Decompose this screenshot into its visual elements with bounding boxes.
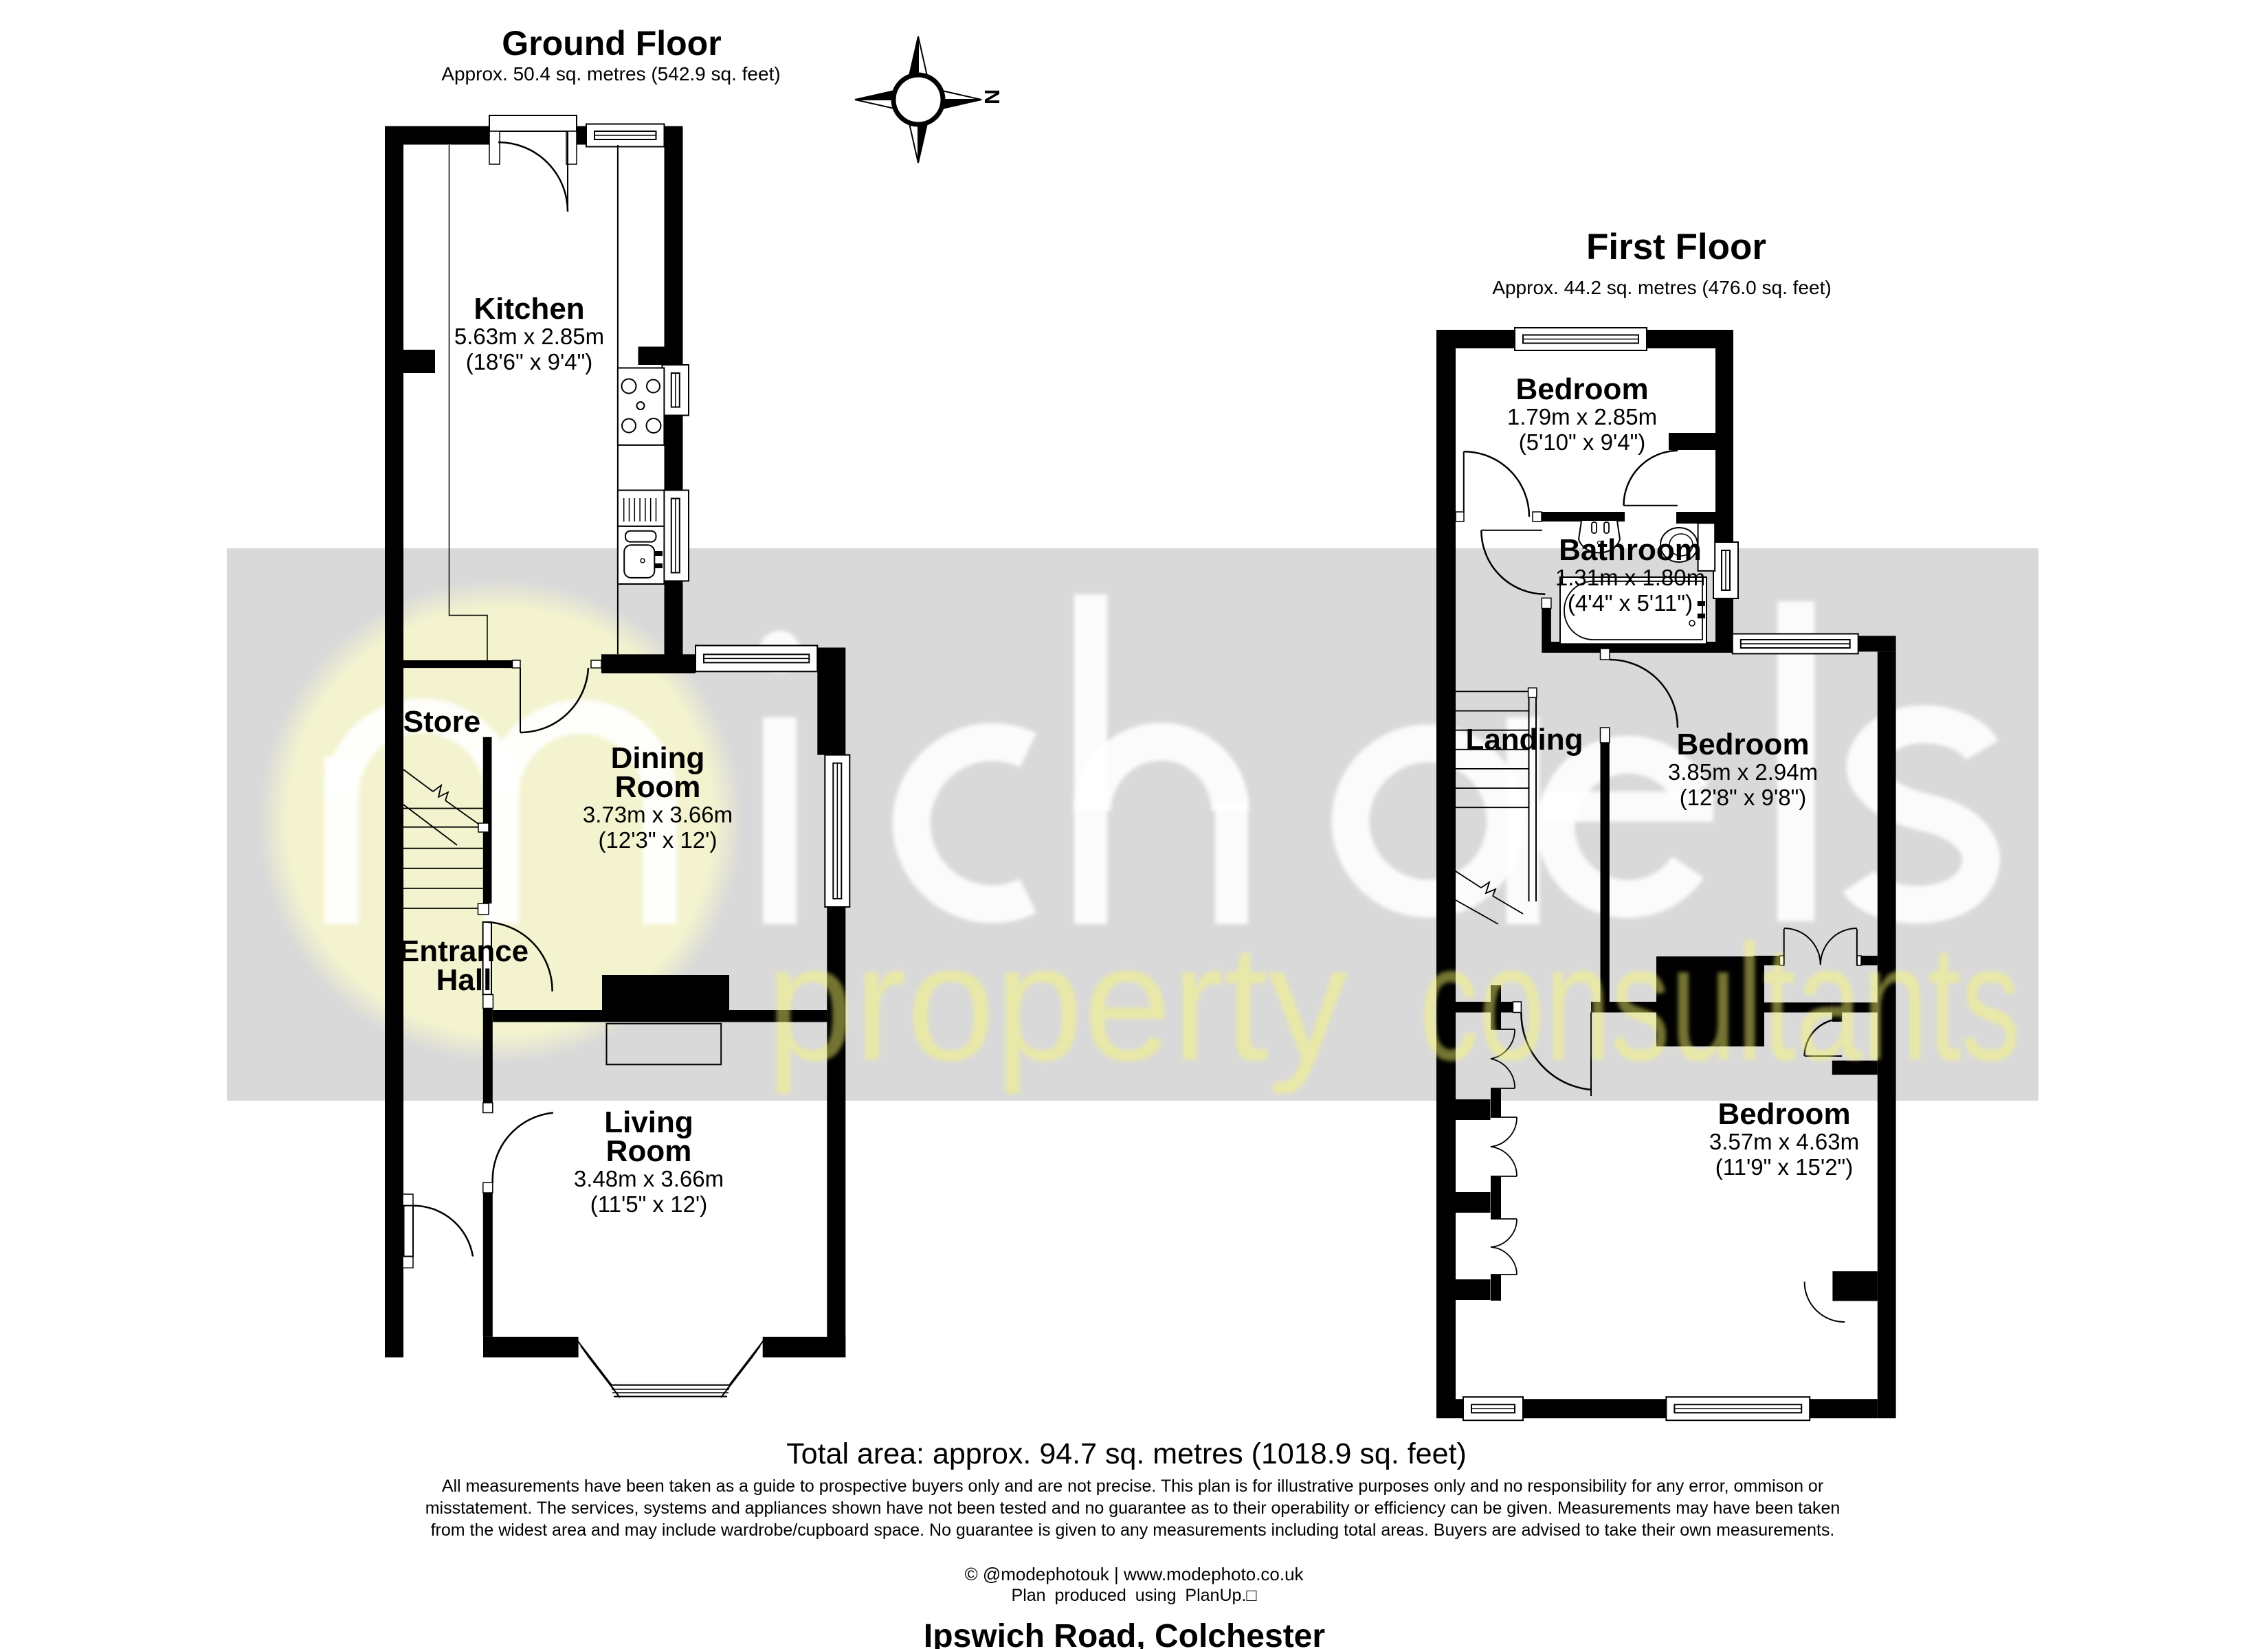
svg-text:Ground Floor: Ground Floor	[502, 24, 721, 63]
svg-text:Plan produced using PlanUp.□: Plan produced using PlanUp.□	[1012, 1586, 1258, 1605]
svg-text:3.48m x 3.66m: 3.48m x 3.66m	[574, 1166, 724, 1191]
svg-text:Bedroom: Bedroom	[1717, 1097, 1850, 1131]
svg-text:Approx. 50.4 sq. metres (542.9: Approx. 50.4 sq. metres (542.9 sq. feet)	[441, 63, 780, 85]
svg-text:3.85m x 2.94m: 3.85m x 2.94m	[1668, 759, 1818, 785]
svg-text:Kitchen: Kitchen	[474, 292, 584, 326]
svg-text:Ipswich Road, Colchester: Ipswich Road, Colchester	[924, 1618, 1325, 1649]
svg-text:1.31m x 1.80m: 1.31m x 1.80m	[1555, 565, 1705, 590]
svg-text:Landing: Landing	[1465, 723, 1583, 756]
svg-text:N: N	[980, 89, 1004, 104]
svg-text:Room: Room	[615, 770, 701, 804]
svg-text:property: property	[766, 910, 1348, 1095]
svg-text:5.63m x 2.85m: 5.63m x 2.85m	[454, 324, 604, 349]
svg-text:3.73m x 3.66m: 3.73m x 3.66m	[583, 802, 733, 827]
svg-text:from the widest area and may i: from the widest area and may include war…	[431, 1521, 1835, 1540]
svg-text:(12'8" x 9'8"): (12'8" x 9'8")	[1680, 785, 1807, 810]
svg-text:Approx. 44.2 sq. metres (476.0: Approx. 44.2 sq. metres (476.0 sq. feet)	[1492, 277, 1831, 298]
svg-text:consultants: consultants	[1419, 910, 2021, 1095]
svg-text:misstatement. The services, sy: misstatement. The services, systems and …	[425, 1499, 1841, 1518]
svg-text:(11'5" x 12'): (11'5" x 12')	[590, 1191, 707, 1217]
svg-text:Total area: approx. 94.7 sq. m: Total area: approx. 94.7 sq. metres (101…	[786, 1437, 1467, 1470]
svg-text:(4'4" x 5'11"): (4'4" x 5'11")	[1568, 590, 1693, 616]
svg-text:© @modephotouk | www.modephoto: © @modephotouk | www.modephoto.co.uk	[964, 1564, 1304, 1584]
svg-text:1.79m x 2.85m: 1.79m x 2.85m	[1507, 404, 1657, 429]
svg-text:(11'9" x 15'2"): (11'9" x 15'2")	[1715, 1154, 1854, 1180]
svg-text:3.57m x 4.63m: 3.57m x 4.63m	[1709, 1129, 1859, 1154]
svg-text:(18'6" x 9'4"): (18'6" x 9'4")	[466, 349, 593, 374]
svg-text:Room: Room	[606, 1134, 692, 1168]
svg-text:Bathroom: Bathroom	[1559, 533, 1702, 567]
svg-text:Bedroom: Bedroom	[1515, 372, 1648, 406]
svg-text:Store: Store	[403, 705, 480, 739]
svg-text:First Floor: First Floor	[1586, 227, 1766, 267]
svg-text:All measurements have been tak: All measurements have been taken as a gu…	[442, 1477, 1823, 1496]
svg-text:Bedroom: Bedroom	[1676, 728, 1809, 761]
svg-text:(5'10" x 9'4"): (5'10" x 9'4")	[1519, 429, 1646, 455]
svg-text:(12'3" x 12'): (12'3" x 12')	[599, 827, 718, 853]
svg-text:Hall: Hall	[436, 963, 492, 997]
